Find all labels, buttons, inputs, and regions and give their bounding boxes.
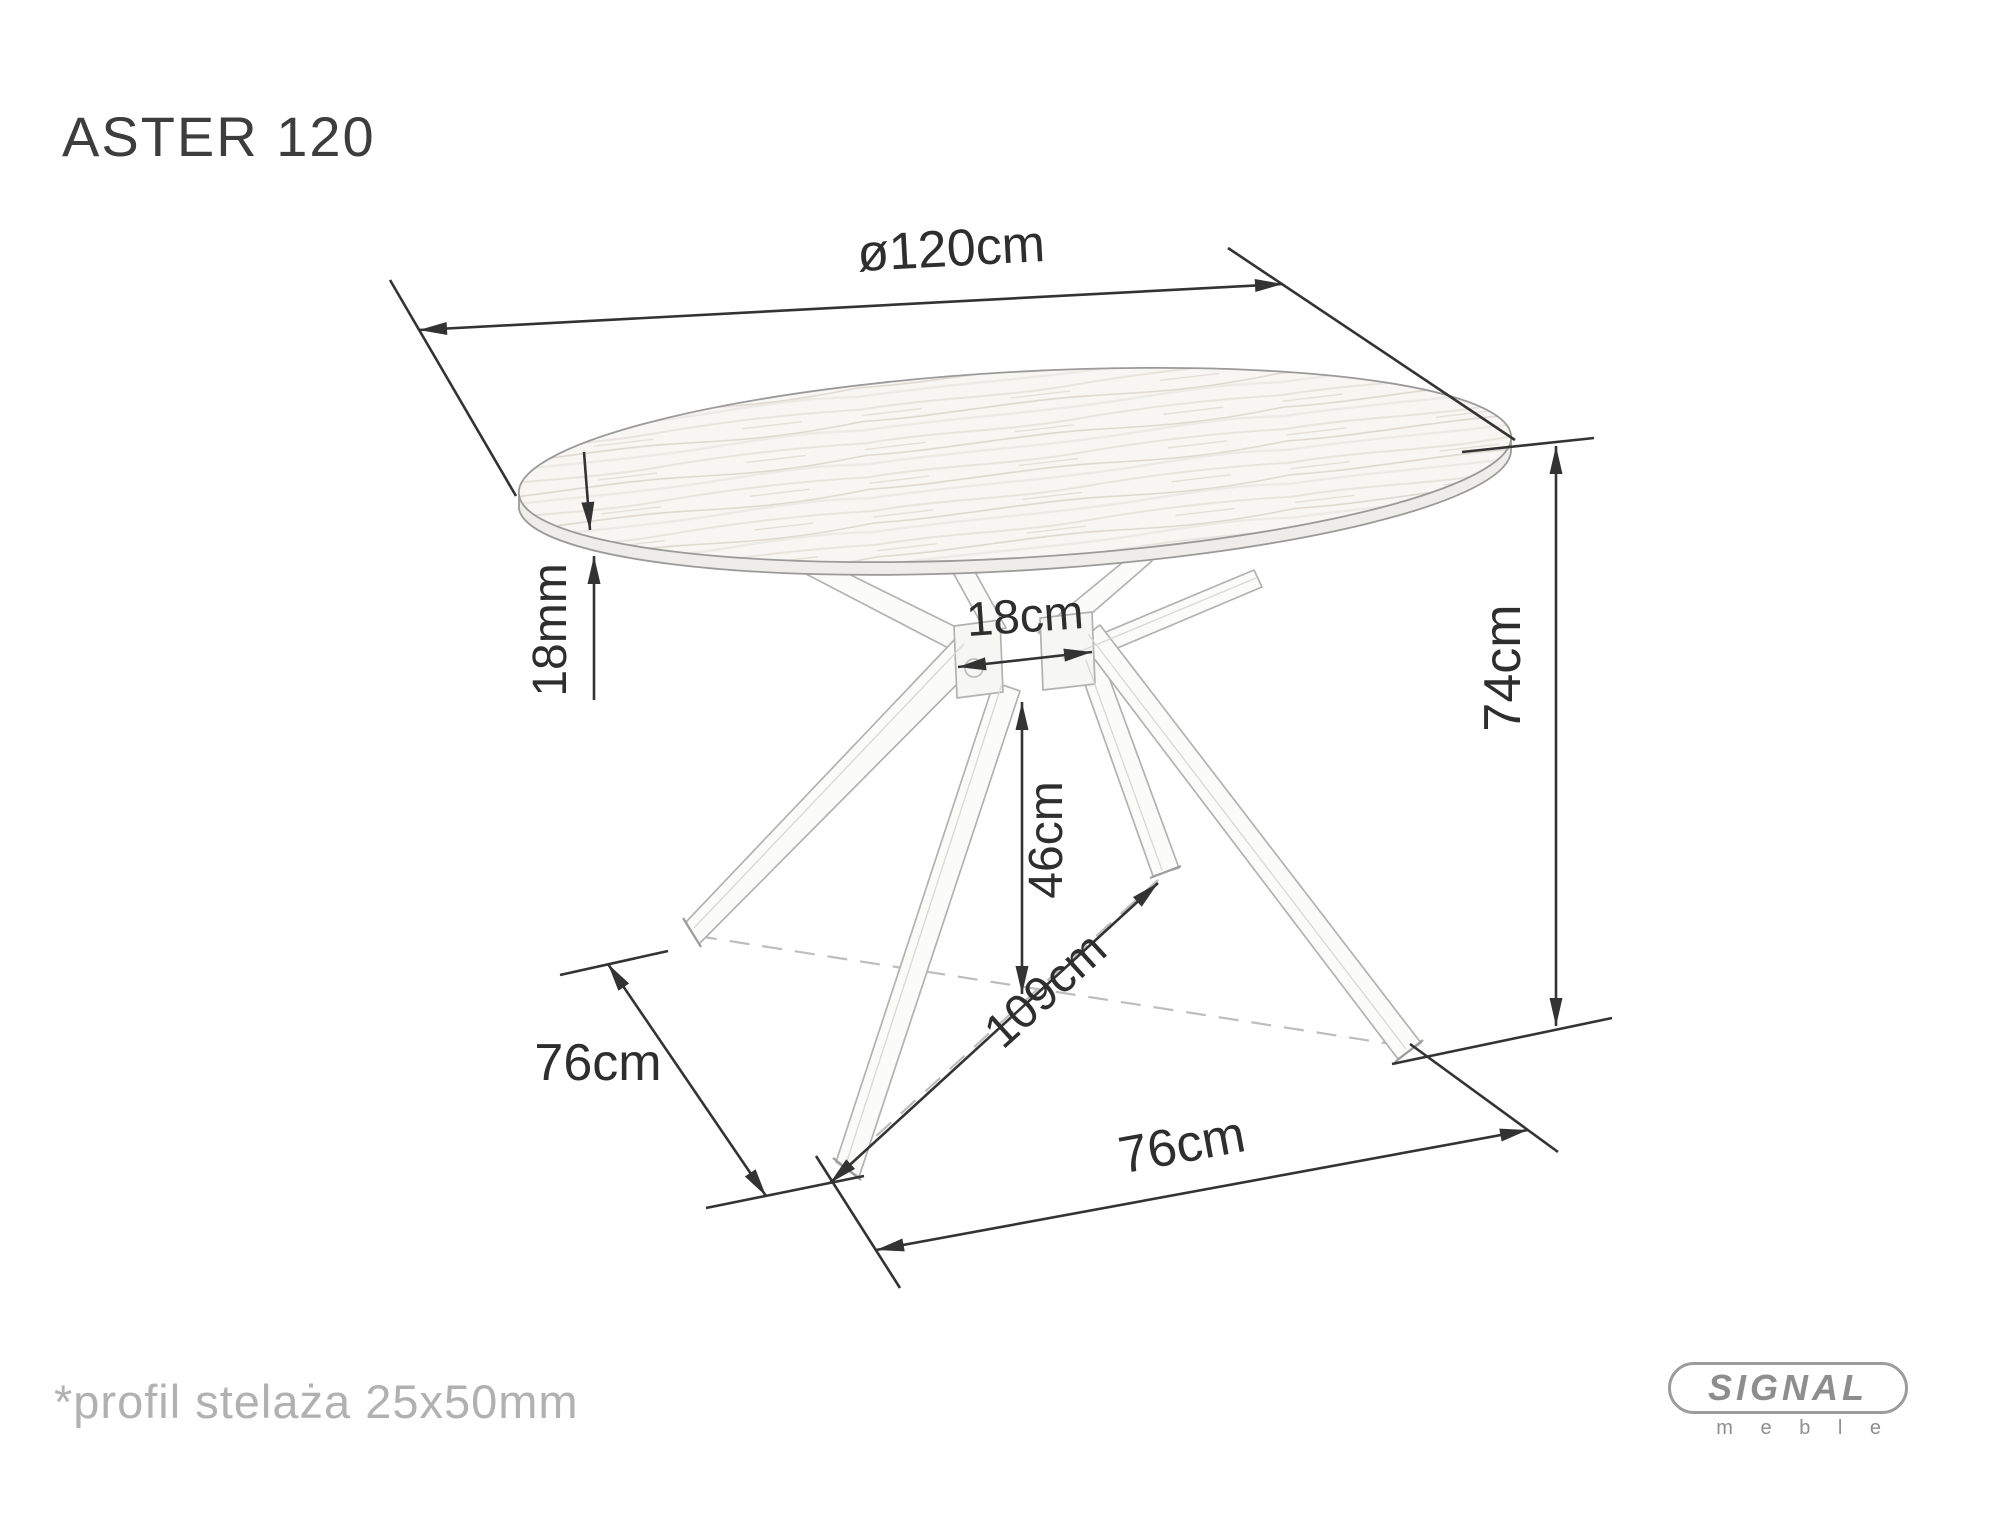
page-title: ASTER 120 [62, 104, 376, 169]
extension-line [1392, 1018, 1612, 1064]
logo-sub-text: m e b l e [1668, 1418, 1908, 1438]
table-top [513, 344, 1516, 587]
logo-brand-text: SIGNAL [1708, 1370, 1868, 1406]
dimension-label-hub-width: 18cm [965, 586, 1086, 647]
dimension-label-base-front: 76cm [1114, 1105, 1250, 1185]
frame-profile-footnote: *profil stelaża 25x50mm [54, 1374, 579, 1429]
dimension-label-hub-clearance: 46cm [1020, 781, 1073, 898]
dimension-label-diameter: ø120cm [856, 215, 1047, 283]
logo-pill-outline: SIGNAL [1668, 1362, 1908, 1414]
dimension-label-table-height: 74cm [1474, 604, 1532, 731]
extension-line [1410, 1044, 1558, 1152]
diagram-page: ø120cm 18mm 18cm 46cm 109cm 74cm 76cm [0, 0, 2000, 1530]
dimension-label-feet-diagonal: 109cm [974, 922, 1116, 1058]
signal-meble-logo: SIGNAL m e b l e [1668, 1362, 1908, 1438]
table-dimension-drawing: ø120cm 18mm 18cm 46cm 109cm 74cm 76cm [0, 0, 2000, 1530]
table-top-wood-grain [513, 344, 1516, 587]
dimension-label-top-thickness: 18mm [524, 563, 577, 696]
dimension-line-diameter [419, 284, 1283, 330]
dimension-table-height [1392, 438, 1612, 1064]
dimension-label-base-left: 76cm [534, 1034, 661, 1092]
extension-line [390, 280, 516, 496]
